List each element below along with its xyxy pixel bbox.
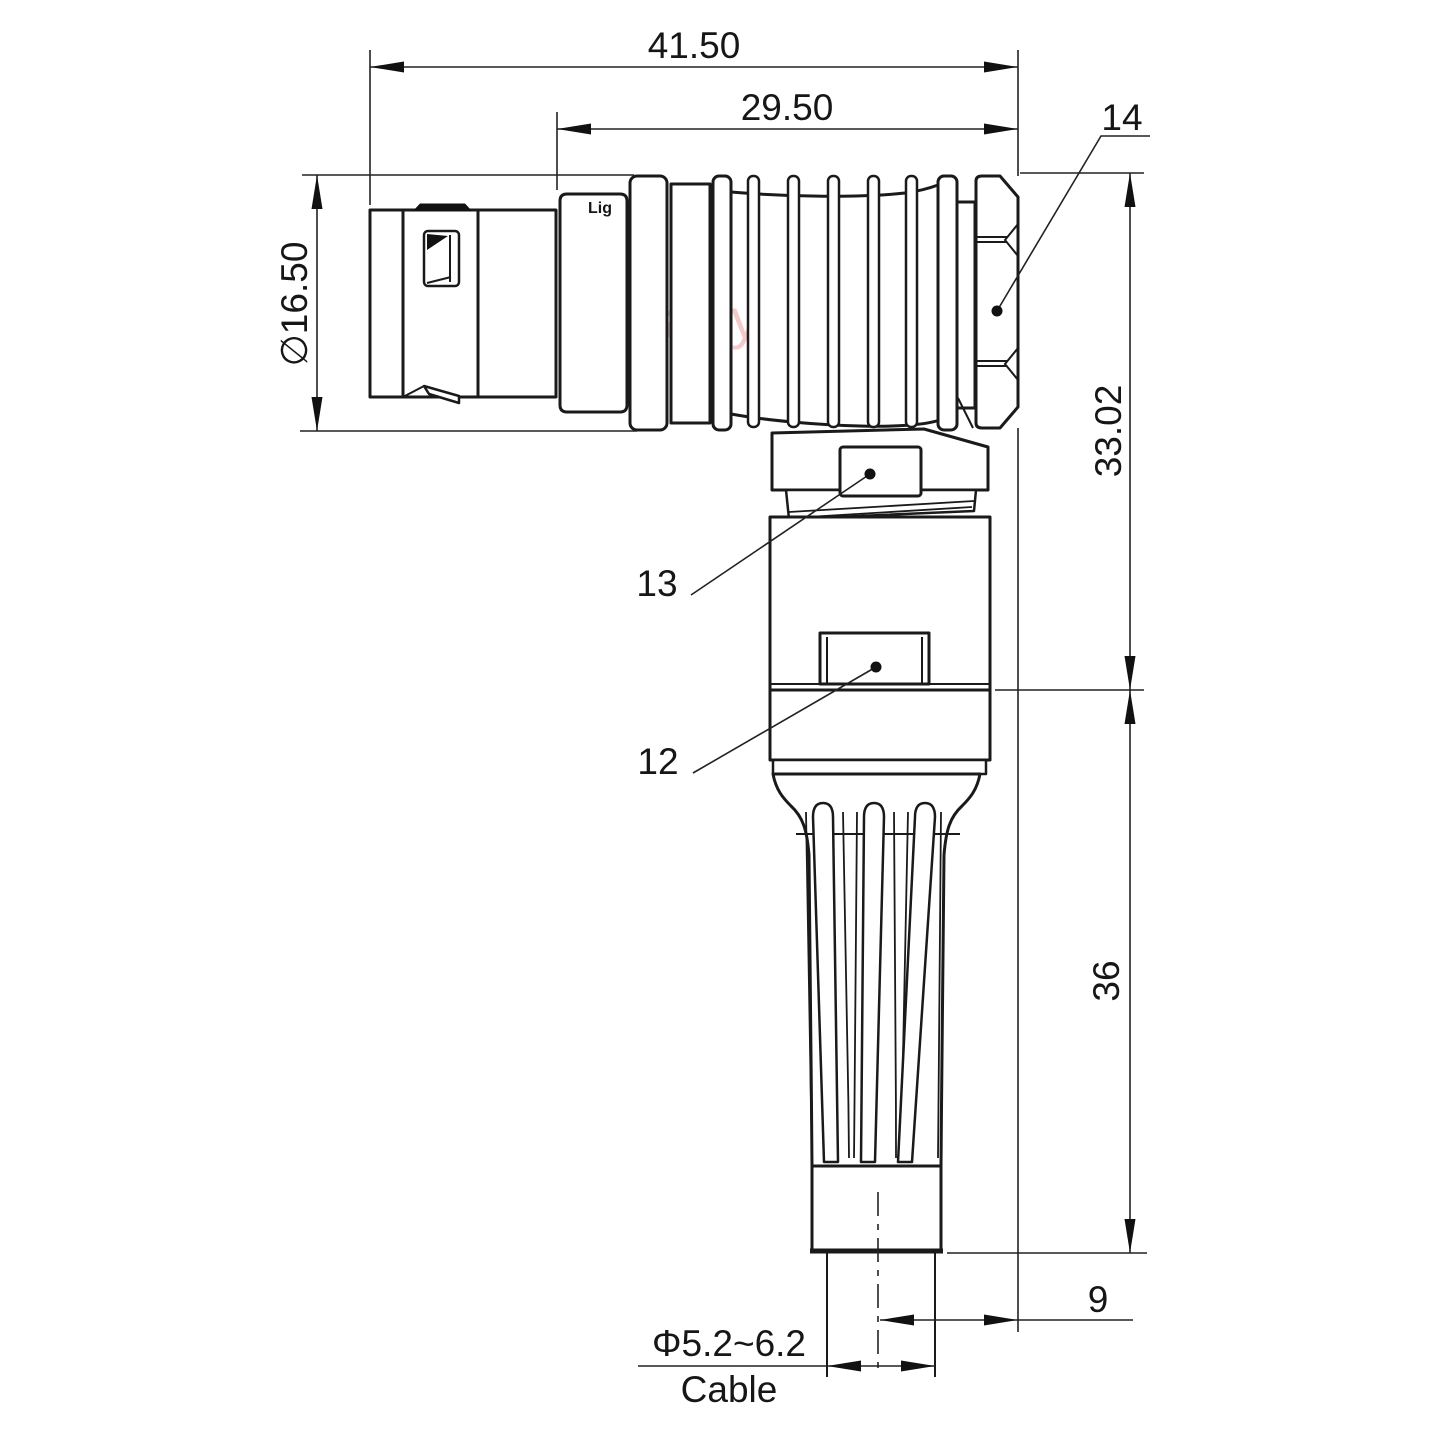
lower-collar [770, 690, 990, 760]
dim-text-33-02: 33.02 [1088, 385, 1129, 478]
rib-2 [788, 176, 799, 427]
rib-3 [828, 176, 839, 427]
arrow-up [1125, 690, 1136, 724]
rear-barrel [630, 176, 975, 430]
hex-nut-shape [976, 176, 1018, 428]
mid-collar-shape [560, 194, 627, 412]
leader-dot-12 [871, 662, 882, 673]
boot-ring [773, 760, 986, 774]
wrench-flat-upper [840, 447, 921, 496]
arrow-left [557, 124, 591, 135]
arrow-right [901, 1361, 935, 1372]
arrow-up [312, 175, 323, 209]
dim-text-29-50: 29.50 [741, 87, 834, 128]
rib-4 [868, 176, 879, 427]
arrow-down [1125, 656, 1136, 690]
arrow-down [312, 397, 323, 431]
leader-dot-13 [865, 469, 876, 480]
latch-bump [413, 204, 472, 212]
hex-nut [976, 176, 1018, 428]
dim-text-36: 36 [1086, 960, 1127, 1001]
arrow-right [984, 1315, 1018, 1326]
cable-label: Cable [681, 1369, 778, 1410]
arrow-down [1125, 1219, 1136, 1253]
mid-collar: Lig [560, 194, 627, 412]
front-plug-body [370, 204, 556, 404]
dim-text-41-50: 41.50 [648, 25, 741, 66]
engineering-drawing-page: Lightany Lig [0, 0, 1440, 1440]
rear-step [957, 202, 975, 408]
strain-relief-boot [773, 774, 980, 1166]
cable-ferrule [812, 1166, 941, 1252]
arrow-left [827, 1361, 861, 1372]
dim-text-cable-diameter: Φ5.2~6.2 [652, 1323, 806, 1364]
connector-drawing-svg: Lightany Lig [0, 0, 1440, 1440]
rib-5 [906, 176, 917, 427]
arrow-right [984, 124, 1018, 135]
wrench-flat-lower [820, 633, 929, 684]
connector-vertical-body [770, 429, 990, 1377]
leader-dot-14 [992, 306, 1003, 317]
ring-a [630, 176, 667, 430]
rear-collar [938, 176, 957, 430]
dim-overall-length: 41.50 [370, 25, 1018, 205]
body-print-text: Lig [588, 200, 612, 217]
dim-text-16-50: ∅16.50 [274, 242, 315, 367]
dim-text-9: 9 [1088, 1279, 1109, 1320]
part-label-12: 12 [637, 741, 678, 782]
part-label-13: 13 [636, 563, 677, 604]
barrel-step [671, 184, 710, 423]
connector-side-view: Lig [370, 176, 1018, 430]
dim-cable-diameter: Φ5.2~6.2 Cable [638, 1323, 935, 1410]
ring-b [713, 176, 731, 430]
arrow-up [1125, 173, 1136, 207]
arrow-left [370, 62, 404, 73]
front-shell [370, 210, 556, 397]
rib-1 [748, 176, 759, 427]
arrow-left [880, 1315, 914, 1326]
dim-upper-height: 33.02 [1020, 173, 1144, 690]
arrow-right [984, 62, 1018, 73]
part-label-14: 14 [1101, 97, 1142, 138]
